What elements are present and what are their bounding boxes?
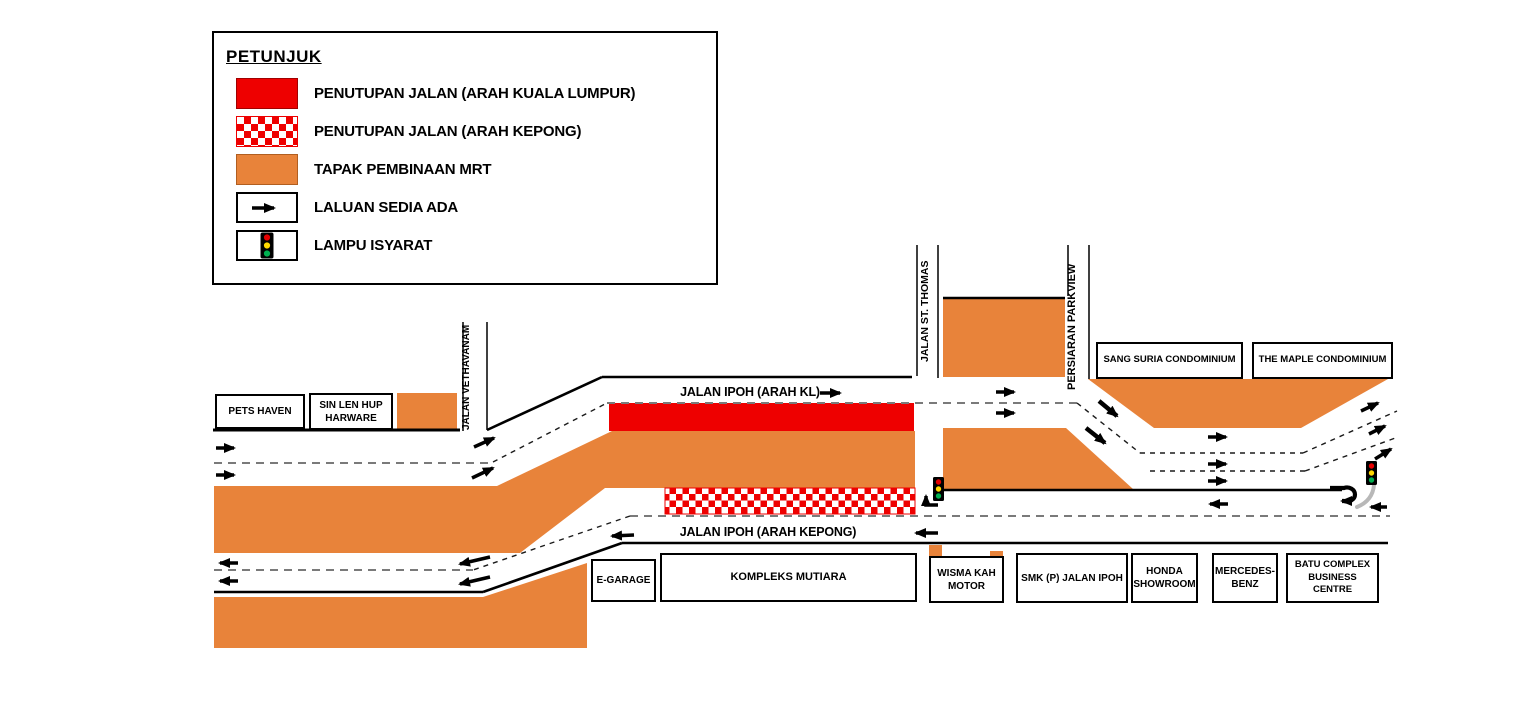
legend-item-label: LAMPU ISYARAT bbox=[314, 237, 432, 254]
mrt-zone-shoplot bbox=[397, 393, 457, 430]
flow-arrow-southeast bbox=[1099, 401, 1117, 416]
legend-item-label: PENUTUPAN JALAN (ARAH KEPONG) bbox=[314, 123, 581, 140]
solid-red-swatch bbox=[236, 78, 298, 109]
road-label-jalan-vethavanam: JALAN VETHAVANAM bbox=[461, 320, 472, 434]
building-the-maple-condominium: THE MAPLE CONDOMINIUM bbox=[1252, 342, 1393, 379]
arrow-swatch bbox=[236, 192, 298, 223]
flow-arrow-northeast bbox=[1375, 449, 1391, 459]
road-label-jalan-ipoh-kepong: JALAN IPOH (ARAH KEPONG) bbox=[668, 525, 868, 539]
building-pets-haven: PETS HAVEN bbox=[215, 394, 305, 429]
building-smk-p-jalan-ipoh: SMK (P) JALAN IPOH bbox=[1016, 553, 1128, 603]
flow-arrow-northeast bbox=[472, 468, 493, 478]
building-sang-suria-condominium: SANG SURIA CONDOMINIUM bbox=[1096, 342, 1243, 379]
legend-item-label: LALUAN SEDIA ADA bbox=[314, 199, 458, 216]
legend-title: PETUNJUK bbox=[226, 47, 716, 67]
building-honda-showroom: HONDA SHOWROOM bbox=[1131, 553, 1198, 603]
building-mercedes-benz: MERCEDES-BENZ bbox=[1212, 553, 1278, 603]
traffic-light-u-turn bbox=[1366, 461, 1377, 485]
flow-arrow-southwest bbox=[460, 577, 490, 584]
legend-item-label: TAPAK PEMBINAAN MRT bbox=[314, 161, 491, 178]
legend-item-closure-kepong: PENUTUPAN JALAN (ARAH KEPONG) bbox=[236, 116, 716, 147]
flow-arrow-northeast bbox=[474, 438, 494, 447]
legend-item-existing-route: LALUAN SEDIA ADA bbox=[236, 192, 716, 223]
traffic-light-icon bbox=[260, 232, 274, 259]
mrt-zone-junction bbox=[943, 428, 1133, 489]
legend-item-traffic-light: LAMPU ISYARAT bbox=[236, 230, 716, 261]
flow-arrow-northeast bbox=[1369, 426, 1385, 434]
closure-kl-direction bbox=[609, 403, 914, 431]
building-sin-len-hup-harware: SIN LEN HUP HARWARE bbox=[309, 393, 393, 430]
traffic-light-st-thomas bbox=[933, 477, 944, 501]
traffic-light-swatch bbox=[236, 230, 298, 261]
mrt-zone-condo-front bbox=[1088, 379, 1388, 428]
flow-arrow-southeast bbox=[1086, 428, 1105, 443]
legend-item-closure-kl: PENUTUPAN JALAN (ARAH KUALA LUMPUR) bbox=[236, 78, 716, 109]
mrt-zone-st-thomas bbox=[943, 297, 1065, 377]
legend-item-label: PENUTUPAN JALAN (ARAH KUALA LUMPUR) bbox=[314, 85, 635, 102]
flow-arrow-west bbox=[612, 535, 634, 536]
road-label-persiaran-parkview: PERSIARAN PARKVIEW bbox=[1066, 248, 1078, 406]
traffic-diversion-diagram: PETUNJUK PENUTUPAN JALAN (ARAH KUALA LUM… bbox=[0, 0, 1536, 720]
building-batu-complex: BATU COMPLEX BUSINESS CENTRE bbox=[1286, 553, 1379, 603]
closure-kepong-direction bbox=[665, 488, 915, 514]
flow-arrow-northeast bbox=[1361, 403, 1378, 411]
kl-road-top-diagonal bbox=[487, 377, 602, 430]
road-label-jalan-ipoh-kl: JALAN IPOH (ARAH KL) bbox=[660, 385, 840, 399]
u-turn-guide-curve bbox=[1357, 485, 1374, 507]
arrow-icon bbox=[248, 202, 286, 214]
flow-arrow-southwest bbox=[460, 557, 490, 564]
orange-swatch bbox=[236, 154, 298, 185]
building-kompleks-mutiara: KOMPLEKS MUTIARA bbox=[660, 553, 917, 602]
legend-box: PETUNJUK PENUTUPAN JALAN (ARAH KUALA LUM… bbox=[212, 31, 718, 285]
building-wisma-kah-motor: WISMA KAH MOTOR bbox=[929, 556, 1004, 603]
checkered-red-swatch bbox=[236, 116, 298, 147]
u-turn-arrow bbox=[1330, 488, 1355, 502]
legend-item-mrt-site: TAPAK PEMBINAAN MRT bbox=[236, 154, 716, 185]
building-e-garage: E-GARAGE bbox=[591, 559, 656, 602]
road-label-jalan-st-thomas: JALAN ST. THOMAS bbox=[919, 246, 931, 376]
